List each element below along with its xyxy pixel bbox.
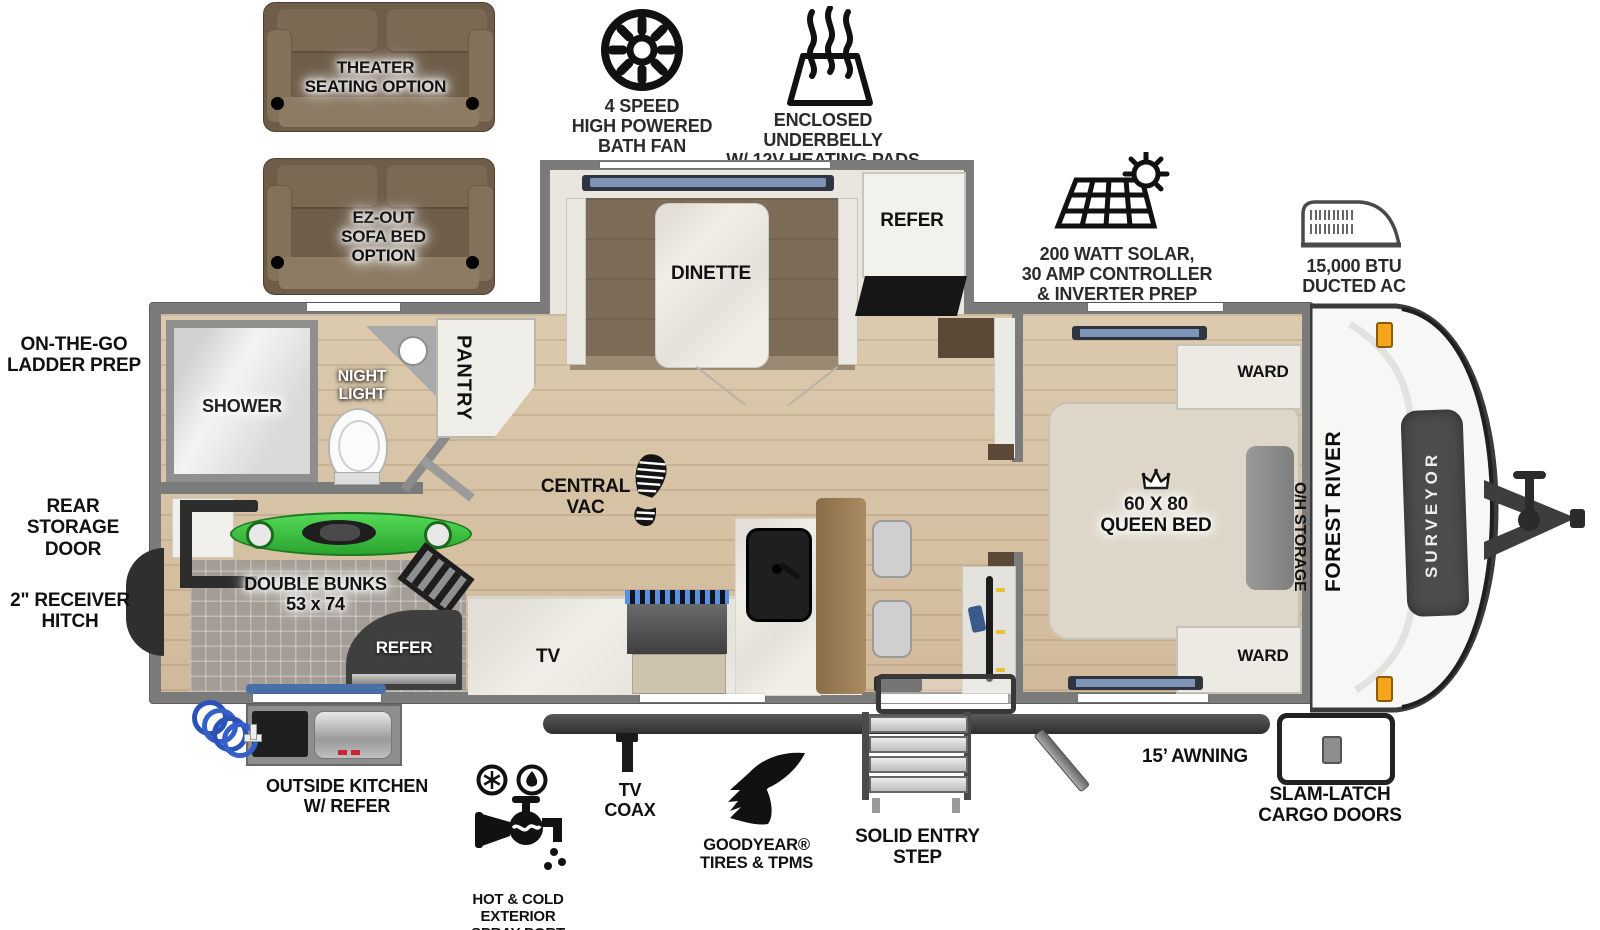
tank-marking (351, 750, 360, 755)
awning-arm (1033, 728, 1090, 792)
dinette-endcap (566, 198, 586, 365)
bath-fan-label: 4 SPEED HIGH POWERED BATH FAN (556, 96, 728, 156)
central-vac-label: CENTRAL VAC (538, 476, 633, 519)
bathroom-sink (398, 336, 428, 366)
tv-coax-label: TV COAX (590, 780, 670, 820)
refrigerator-counter (855, 276, 967, 316)
tv-label: TV (518, 646, 578, 667)
stove-base (632, 654, 726, 694)
marker-light (1376, 676, 1393, 702)
surveyor-logo: SURVEYOR (1422, 428, 1441, 600)
slideout-wall-trim (600, 162, 830, 168)
ladder-prep-label: ON-THE-GO LADDER PREP (0, 334, 148, 377)
sofa-cupholder (271, 97, 284, 110)
shower-label: SHOWER (196, 396, 288, 416)
rear-storage-door-label: REAR STORAGE DOOR (2, 496, 144, 560)
floorplan-canvas: THEATER SEATING OPTION EZ-OUT SOFA BED O… (0, 0, 1600, 930)
dinette-window-glass (590, 178, 826, 187)
island-counter (816, 498, 866, 694)
wall-trim (1078, 694, 1208, 702)
dinette-label: DINETTE (652, 263, 770, 284)
marker-light (1376, 322, 1393, 348)
bunk-rail-post (180, 500, 192, 588)
crown-icon (1140, 468, 1172, 492)
wardrobe-label-bottom: WARD (1232, 646, 1294, 665)
door-hinge-mark (996, 668, 1005, 672)
sofa-cupholder (466, 256, 479, 269)
heated-underbelly-icon (772, 6, 874, 108)
toilet-tank (334, 472, 380, 485)
tall-cabinet (994, 318, 1015, 458)
outside-kitchen-label: OUTSIDE KITCHEN W/ REFER (258, 776, 436, 816)
overhead-cabinet (938, 318, 996, 358)
goodyear-label: GOODYEAR® TIRES & TPMS (694, 836, 819, 873)
wardrobe-label-top: WARD (1232, 362, 1294, 381)
kayak-hatch (246, 521, 274, 549)
hitch-a-frame (1482, 468, 1586, 578)
sofa-cupholder (466, 97, 479, 110)
ducted-ac-label: 15,000 BTU DUCTED AC (1284, 256, 1424, 296)
entry-step-label: SOLID ENTRY STEP (850, 826, 985, 869)
toilet-seat (338, 420, 380, 472)
kitchen-sink (746, 528, 812, 622)
bunk-floor-mat (246, 684, 386, 694)
dinette-table (655, 203, 769, 368)
ducted-ac-icon (1296, 192, 1408, 254)
dinette-endcap (838, 198, 858, 365)
bunk-refer-label: REFER (358, 638, 450, 657)
wall-trim (253, 694, 381, 702)
door-hinge-mark (996, 630, 1005, 634)
cargo-doors-label: SLAM-LATCH CARGO DOORS (1250, 784, 1410, 827)
outside-kitchen-compartment (246, 704, 402, 766)
spray-port-label: HOT & COLD EXTERIOR SPRAY PORT (448, 892, 588, 930)
receiver-hitch-label: 2" RECEIVER HITCH (0, 590, 140, 633)
awning-label: 15’ AWNING (1130, 746, 1260, 767)
refrigerator-label: REFER (866, 210, 958, 231)
bar-stool (872, 520, 912, 578)
tank-marking (338, 750, 347, 755)
oh-storage-label: O/H STORAGE (1290, 442, 1308, 632)
ez-out-sofa-label: EZ-OUT SOFA BED OPTION (316, 208, 451, 265)
wall-trim (307, 303, 400, 311)
bar-stool (872, 600, 912, 658)
entry-door (876, 674, 1016, 714)
sofa-seat-base (279, 97, 479, 127)
sofa-back-cushion (277, 165, 377, 209)
queen-bed-label: 60 X 80 QUEEN BED (1076, 494, 1236, 537)
bedroom-window-glass (1080, 329, 1199, 337)
night-light-label: NIGHT LIGHT (320, 368, 404, 404)
bed-pillow (1246, 446, 1294, 590)
sofa-back-cushion (277, 9, 377, 53)
coax-connector (616, 733, 638, 742)
hose-faucet-handle (250, 724, 257, 740)
sofa-cupholder (271, 256, 284, 269)
door-hinge-mark (996, 588, 1005, 592)
coax-connector-body (622, 742, 633, 772)
theater-seating-label: THEATER SEATING OPTION (293, 58, 458, 96)
bath-fan-icon (598, 6, 686, 94)
entry-door-handle (986, 576, 993, 682)
kayak-seat (320, 524, 360, 541)
pantry-label: PANTRY (452, 326, 474, 430)
spray-port-icon (468, 764, 568, 884)
cabinet-shelf (988, 444, 1014, 460)
coiled-hose (192, 700, 256, 752)
bedroom-window-glass (1076, 679, 1195, 687)
stove-body (627, 604, 727, 654)
solar-prep-icon (1050, 152, 1170, 248)
wall-trim (1088, 303, 1223, 311)
entry-steps (860, 712, 974, 814)
cargo-door-latch (1322, 736, 1342, 764)
bunk-refer-base (352, 674, 456, 684)
bathroom-wall (161, 482, 423, 494)
wall-trim (640, 694, 765, 702)
stove-flames (625, 590, 729, 604)
goodyear-wingfoot-icon (710, 750, 810, 834)
double-bunks-label: DOUBLE BUNKS 53 x 74 (238, 574, 393, 614)
forest-river-logo: FOREST RIVER (1322, 382, 1346, 640)
solar-prep-label: 200 WATT SOLAR, 30 AMP CONTROLLER & INVE… (1012, 244, 1222, 304)
